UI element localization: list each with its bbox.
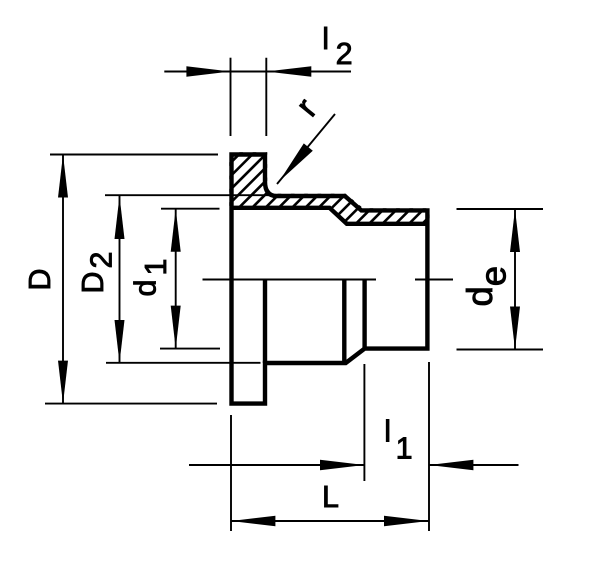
svg-text:L: L xyxy=(322,480,339,514)
svg-text:D: D xyxy=(23,268,57,290)
